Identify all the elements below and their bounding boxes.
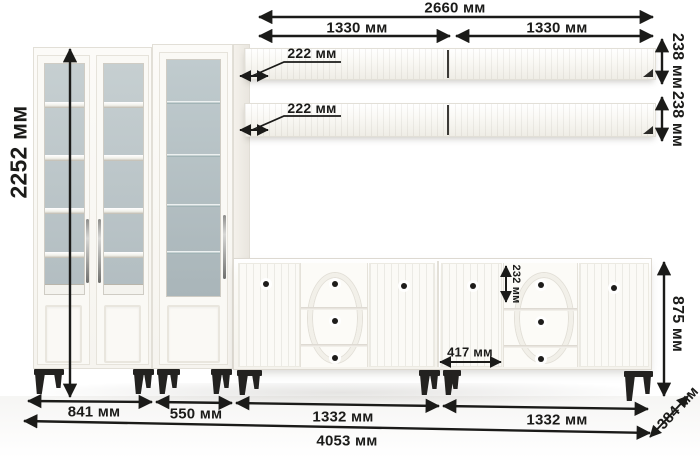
cabinet-interior-floor <box>104 284 143 294</box>
furniture-dimension-diagram: 2660 мм 1330 мм 1330 мм 238 мм 238 мм 22… <box>0 0 700 473</box>
door-knob <box>611 285 617 291</box>
dim-label-drawer-height: 232 мм <box>510 265 522 304</box>
glass-shelf <box>167 101 220 104</box>
drawer-knob <box>332 355 338 361</box>
drawer-knob <box>332 281 338 287</box>
shelf-support <box>447 105 449 135</box>
cabinet-interior-floor <box>45 284 84 294</box>
dim-label-shelf-width-left: 1330 мм <box>326 20 387 37</box>
door-handle <box>98 219 101 283</box>
dim-label-shelf-width-right: 1330 мм <box>526 20 587 37</box>
shelf-support <box>447 50 449 78</box>
cabinet-shelf <box>104 252 143 258</box>
dim-label-width-550: 550 мм <box>170 406 223 423</box>
shelf-bracket <box>643 69 653 77</box>
dim-label-shelf1-depth: 222 мм <box>287 45 336 61</box>
sideboard-section-seam <box>437 261 440 367</box>
glass-panel <box>166 59 221 297</box>
glass-panel <box>44 63 85 295</box>
drawer-knob <box>538 356 544 362</box>
cabinet-shelf <box>45 102 84 108</box>
drawer-knob <box>538 319 544 325</box>
dim-label-shelf2-height: 238 мм <box>668 91 686 147</box>
drawer-knob <box>538 282 544 288</box>
sideboard <box>233 258 652 370</box>
dim-label-width-1332-right: 1332 мм <box>526 412 587 429</box>
glass-door <box>159 52 228 365</box>
glass-shelf <box>167 154 220 157</box>
furniture-leg <box>211 369 232 395</box>
shelf-bracket <box>643 126 653 134</box>
door-lower-panel <box>104 305 141 363</box>
oval-trim <box>515 273 573 363</box>
glass-door <box>37 55 90 365</box>
furniture-leg <box>133 369 154 395</box>
dim-label-sideboard-height: 875 мм <box>668 296 686 352</box>
furniture-leg <box>443 370 461 396</box>
door-knob <box>401 283 407 289</box>
furniture-leg <box>34 369 64 395</box>
dim-label-top-total-width: 2660 мм <box>424 0 485 17</box>
glass-door <box>96 55 149 365</box>
door-handle <box>86 219 89 283</box>
cabinet-shelf <box>45 155 84 161</box>
glass-shelf <box>167 251 220 254</box>
cabinet-shelf <box>104 155 143 161</box>
cabinet-shelf <box>104 102 143 108</box>
glass-shelf <box>167 204 220 207</box>
sideboard-door <box>238 263 300 367</box>
furniture-leg <box>419 370 440 396</box>
dim-label-shelf2-depth: 222 мм <box>287 100 336 116</box>
drawer-gap <box>301 344 367 347</box>
sideboard-door <box>579 263 649 367</box>
cabinet-shelf <box>45 208 84 214</box>
dim-label-total-height: 2252 мм <box>6 106 33 199</box>
door-knob <box>263 281 269 287</box>
glass-panel <box>103 63 144 295</box>
door-lower-panel <box>167 305 220 363</box>
door-knob <box>470 283 476 289</box>
sideboard-door <box>369 263 435 367</box>
drawer-knob <box>332 318 338 324</box>
door-lower-panel <box>45 305 82 363</box>
display-cabinet-double <box>33 47 152 369</box>
dim-label-door-width: 417 мм <box>447 345 493 360</box>
drawer-gap <box>504 345 577 348</box>
display-cabinet-single <box>152 44 233 369</box>
drawer-stack <box>300 263 368 367</box>
furniture-leg <box>237 370 262 396</box>
drawer-gap <box>301 307 367 310</box>
cabinet-shelf <box>104 208 143 214</box>
dim-label-shelf1-height: 238 мм <box>668 33 686 89</box>
furniture-leg <box>157 369 180 395</box>
dim-label-bottom-total-width: 4053 мм <box>316 433 377 450</box>
cabinet-shelf <box>45 252 84 258</box>
door-handle <box>223 215 226 279</box>
furniture-leg <box>624 371 653 402</box>
dim-label-width-841: 841 мм <box>68 404 121 421</box>
dim-label-width-1332-left: 1332 мм <box>312 409 373 426</box>
drawer-gap <box>504 308 577 311</box>
